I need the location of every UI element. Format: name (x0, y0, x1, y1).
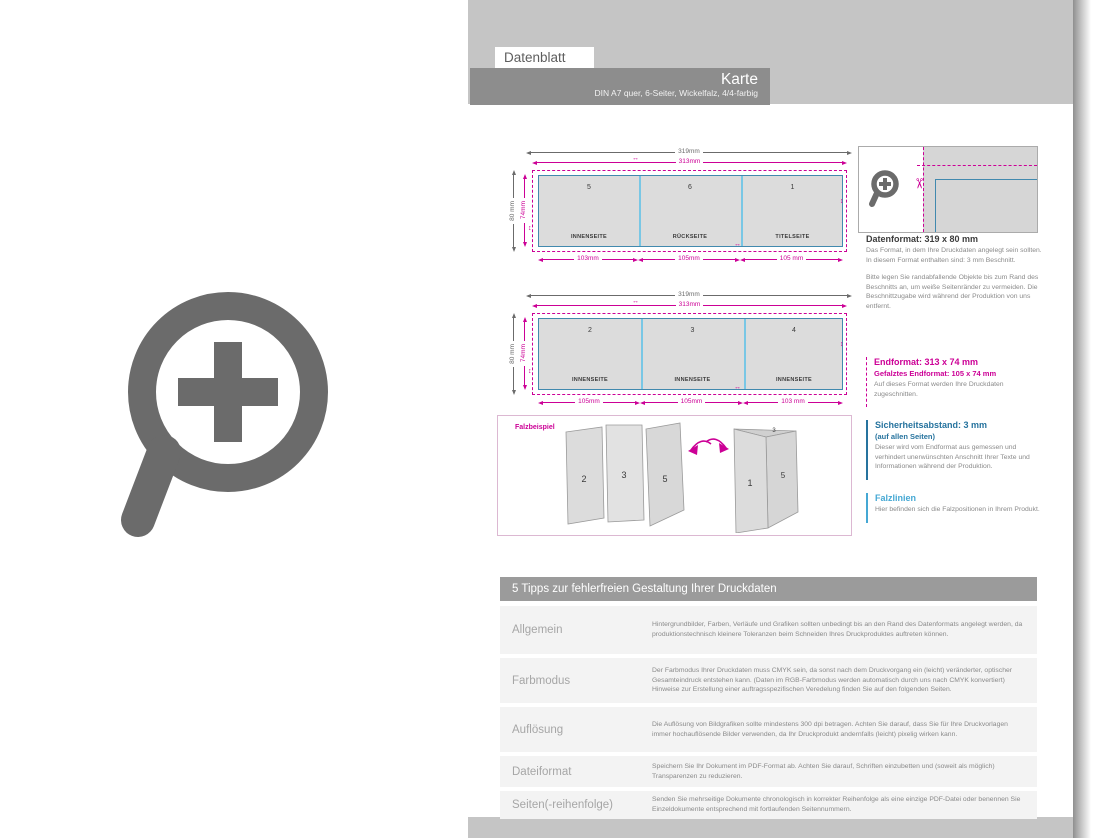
fold-direction-arrow: ↕ (840, 198, 844, 205)
tips-title: 5 Tipps zur fehlerfreien Gestaltung Ihre… (500, 577, 1037, 601)
svg-text:5: 5 (781, 471, 786, 480)
panel-label: INNENSEITE (539, 234, 639, 240)
tip-row-allgemein: Allgemein Hintergrundbilder, Farben, Ver… (500, 606, 1037, 654)
endformat-section: Endformat: 313 x 74 mm Gefalztes Endform… (866, 357, 1042, 407)
product-subtitle: DIN A7 quer, 6-Seiter, Wickelfalz, 4/4-f… (470, 88, 758, 98)
panel-width-dimension: 105mm (638, 256, 740, 263)
endformat-height-dimension: 74mm (521, 174, 528, 247)
svg-text:3: 3 (621, 470, 626, 480)
sicherheitsabstand-text: Dieser wird vom Endformat aus gemessen u… (875, 443, 1042, 472)
sicherheitsabstand-section: Sicherheitsabstand: 3 mm (auf allen Seit… (866, 420, 1042, 480)
product-title-bar: Karte DIN A7 quer, 6-Seiter, Wickelfalz,… (470, 68, 770, 105)
card-spread: 5 6 1 INNENSEITE RÜCKSEITE TITELSEITE (538, 175, 843, 247)
fold-direction-arrow: ↕ (528, 368, 532, 375)
datenformat-text-1: Das Format, in dem Ihre Druckdaten angel… (866, 246, 1042, 265)
falzlinien-heading: Falzlinien (875, 493, 1042, 503)
panel-width-dimension: 103mm (538, 256, 638, 263)
panel-label: INNENSEITE (641, 377, 744, 383)
tip-row-dateiformat: Dateiformat Speichern Sie Ihr Dokument i… (500, 756, 1037, 787)
svg-text:5: 5 (662, 474, 667, 484)
falzlinien-section: Falzlinien Hier befinden sich die Falzpo… (866, 493, 1042, 523)
datenblatt-tab: Datenblatt (495, 47, 594, 68)
tip-row-seitenreihenfolge: Seiten(-reihenfolge) Senden Sie mehrseit… (500, 791, 1037, 819)
panel-width-dimension: 105mm (538, 399, 640, 406)
cut-line-horizontal (935, 179, 1037, 180)
bleed-detail-box: ✂ (858, 146, 1038, 233)
page-edge-shadow (1073, 0, 1091, 838)
fold-direction-arrow: ↔ (632, 298, 639, 305)
corner-closeup: ✂ (911, 147, 1037, 232)
falzlinien-text: Hier befinden sich die Falzpositionen in… (875, 505, 1042, 515)
bleed-line-vertical (923, 147, 924, 232)
fold-direction-arrow: ↕ (840, 341, 844, 348)
tip-row-farbmodus: Farbmodus Der Farbmodus Ihrer Druckdaten… (500, 658, 1037, 703)
cut-line-vertical (935, 179, 936, 232)
tip-text: Hintergrundbilder, Farben, Verläufe und … (652, 620, 1037, 640)
scissors-icon: ✂ (911, 178, 927, 190)
panel-label: INNENSEITE (744, 377, 844, 383)
endformat-width-dimension: 313mm (532, 159, 847, 166)
sicherheitsabstand-subheading: (auf allen Seiten) (875, 432, 1042, 441)
datenformat-text-2: Bitte legen Sie randabfallende Objekte b… (866, 273, 1042, 311)
panel-width-dimension: 105mm (640, 399, 743, 406)
tip-label: Allgemein (500, 624, 652, 636)
endformat-width-dimension: 313mm (532, 302, 847, 309)
panel-number: 4 (744, 327, 844, 334)
datenformat-section: Datenformat: 319 x 80 mm Das Format, in … (866, 234, 1042, 319)
fold-direction-arrow: ↕ (528, 225, 532, 232)
magnifier-plus-icon (867, 169, 905, 213)
datenformat-height-dimension: 80 mm (510, 313, 517, 395)
fold-direction-arrow: ↔ (734, 241, 741, 248)
fold-example-box: Falzbeispiel 2 3 5 3 1 5 (497, 415, 852, 536)
datenformat-height-dimension: 80 mm (510, 170, 517, 252)
tip-label: Auflösung (500, 724, 652, 736)
fold-direction-arrow: ↔ (734, 384, 741, 391)
panel-number: 1 (741, 184, 844, 191)
tip-text: Die Auflösung von Bildgrafiken sollte mi… (652, 720, 1037, 740)
zoom-plus-icon (118, 282, 353, 554)
panel-number: 3 (641, 327, 744, 334)
endformat-subheading: Gefalztes Endformat: 105 x 74 mm (874, 369, 1042, 378)
endformat-height-dimension: 74mm (521, 317, 528, 390)
fold-example-illustration: 2 3 5 3 1 5 (528, 420, 828, 533)
endformat-text: Auf dieses Format werden Ihre Druckdaten… (874, 380, 1042, 399)
datenformat-width-dimension: 319mm (526, 149, 852, 156)
datenformat-heading: Datenformat: 319 x 80 mm (866, 234, 1042, 244)
endformat-heading: Endformat: 313 x 74 mm (874, 357, 1042, 367)
panel-width-dimension: 103 mm (743, 399, 843, 406)
bleed-line-horizontal (917, 165, 1037, 166)
tip-text: Der Farbmodus Ihrer Druckdaten muss CMYK… (652, 666, 1037, 696)
layout-diagram-inside: 319mm 313mm 80 mm 74mm 2 (508, 286, 858, 416)
panel-number: 6 (639, 184, 741, 191)
fold-direction-arrow: ↔ (632, 155, 639, 162)
product-title: Karte (470, 71, 758, 88)
sicherheitsabstand-heading: Sicherheitsabstand: 3 mm (875, 420, 1042, 430)
panel-label: INNENSEITE (539, 377, 641, 383)
svg-text:2: 2 (581, 474, 586, 484)
panel-label: TITELSEITE (741, 234, 844, 240)
layout-diagram-outside: 319mm 313mm 80 mm 74mm 5 (508, 143, 858, 273)
tip-row-aufloesung: Auflösung Die Auflösung von Bildgrafiken… (500, 707, 1037, 752)
tip-text: Speichern Sie Ihr Dokument im PDF-Format… (652, 762, 1037, 782)
svg-text:1: 1 (747, 478, 752, 488)
panel-number: 2 (539, 327, 641, 334)
panel-number: 5 (539, 184, 639, 191)
panel-width-dimension: 105 mm (740, 256, 843, 263)
footer-band (468, 817, 1073, 838)
datenformat-width-dimension: 319mm (526, 292, 852, 299)
tip-label: Farbmodus (500, 675, 652, 687)
datasheet-sheet: Datenblatt Karte DIN A7 quer, 6-Seiter, … (468, 0, 1073, 838)
panel-label: RÜCKSEITE (639, 234, 741, 240)
tip-label: Seiten(-reihenfolge) (500, 799, 652, 811)
card-spread: 2 3 4 INNENSEITE INNENSEITE INNENSEITE (538, 318, 843, 390)
datasheet-page: Datenblatt Karte DIN A7 quer, 6-Seiter, … (0, 0, 1117, 838)
tip-label: Dateiformat (500, 766, 652, 778)
tip-text: Senden Sie mehrseitige Dokumente chronol… (652, 795, 1037, 815)
